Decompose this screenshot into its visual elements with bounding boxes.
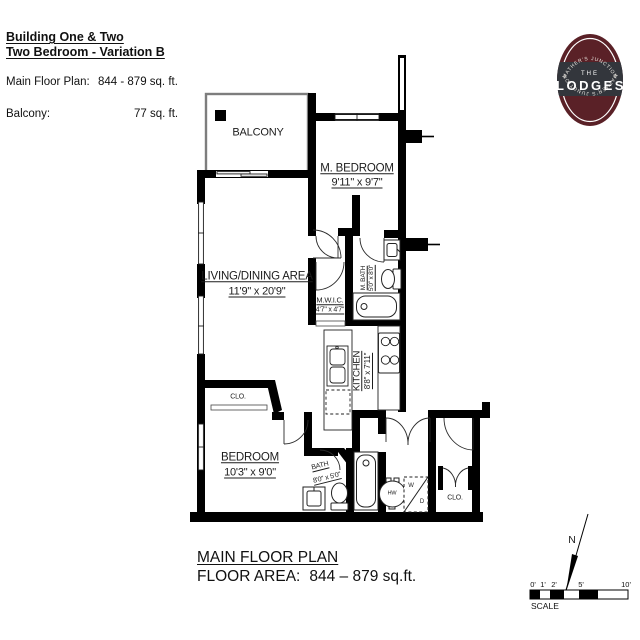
door-mwic <box>316 262 344 290</box>
m-bath-tub <box>353 293 400 320</box>
room-dims-living: 11'9" x 20'9" <box>229 287 286 298</box>
floor-plan-drawing: 0' 1' 2' 5' 10' SCALE MATHER'S JUNCTION … <box>0 0 640 640</box>
scale-caption: SCALE <box>531 601 559 611</box>
door-m-bath <box>360 238 384 262</box>
north-arrow <box>566 514 588 592</box>
bath-sink <box>303 487 325 510</box>
balcony-column <box>215 110 226 121</box>
m-bath-toilet <box>382 269 402 289</box>
main-floor-value: 844 - 879 sq. ft. <box>98 76 178 89</box>
floor-plan-page: 0' 1' 2' 5' 10' SCALE MATHER'S JUNCTION … <box>0 0 640 640</box>
stove <box>379 333 400 373</box>
room-label-balcony: BALCONY <box>232 128 283 139</box>
room-label-bedroom: BEDROOM <box>221 452 279 464</box>
balcony-area-value: 77 sq. ft. <box>134 108 178 121</box>
footer-plan-title: MAIN FLOOR PLAN <box>197 549 338 567</box>
room-dims-bedroom: 10'3" x 9'0" <box>224 468 276 479</box>
footer-floor-area-value: 844 – 879 sq.ft. <box>309 568 416 586</box>
bath-tub <box>354 452 378 510</box>
room-label-living: LIVING/DINING AREA <box>201 271 312 283</box>
dishwasher <box>326 390 350 414</box>
label-hot-water: HW <box>388 491 397 497</box>
bifold-closet-doors <box>443 468 468 487</box>
main-floor-label: Main Floor Plan: <box>6 76 90 89</box>
balcony-area-label: Balcony: <box>6 108 50 121</box>
north-label: N <box>568 535 575 546</box>
label-dryer: D <box>420 499 424 505</box>
room-dims-mwic: 4'7" x 4'7" <box>316 307 344 314</box>
room-dims-m-bedroom: 9'11" x 9'7" <box>332 178 383 189</box>
label-washer: W <box>408 483 413 489</box>
label-closet-entry: CLO. <box>447 495 463 502</box>
footer-floor-area-label: FLOOR AREA: <box>197 568 300 586</box>
window-m-bedroom <box>335 114 379 120</box>
scale-bar: 0' 1' 2' 5' 10' SCALE <box>530 580 631 611</box>
page-title-line1: Building One & Two <box>6 30 124 44</box>
scale-tick-10: 10' <box>621 580 631 589</box>
footer-floor-area: FLOOR AREA: 844 – 879 sq.ft. <box>197 568 416 586</box>
sliding-door-balcony <box>216 171 268 177</box>
room-label-mwic: M.W.I.C. <box>316 296 343 304</box>
page-title-line2: Two Bedroom - Variation B <box>6 45 165 59</box>
logo-name: LODGES <box>556 78 626 93</box>
m-bath-sink <box>384 240 400 260</box>
room-dims-kitchen: 8'8" x 7'11" <box>364 353 372 389</box>
window-living-upper <box>198 202 204 264</box>
scale-tick-5: 5' <box>578 580 584 589</box>
door-entry-single <box>444 418 473 450</box>
french-doors-entry <box>386 418 430 445</box>
room-label-kitchen: KITCHEN <box>352 351 362 391</box>
room-dims-m-bath: 5'0" x 8'0" <box>369 265 376 291</box>
label-closet-bedroom: CLO. <box>230 394 246 401</box>
window-bedroom <box>198 424 204 470</box>
scale-tick-2: 2' <box>551 580 557 589</box>
door-m-bedroom <box>316 236 338 258</box>
room-label-m-bath: M. BATH <box>361 266 368 290</box>
room-label-m-bedroom: M. BEDROOM <box>320 163 393 175</box>
lodges-logo: MATHER'S JUNCTION MATHER'S JUNCTION THE … <box>556 34 626 126</box>
kitchen-sink <box>327 346 348 386</box>
scale-tick-0: 0' <box>530 580 536 589</box>
bath-toilet <box>331 483 348 510</box>
window-living-lower <box>198 296 204 354</box>
logo-the: THE <box>581 71 599 77</box>
scale-tick-1: 1' <box>540 580 546 589</box>
